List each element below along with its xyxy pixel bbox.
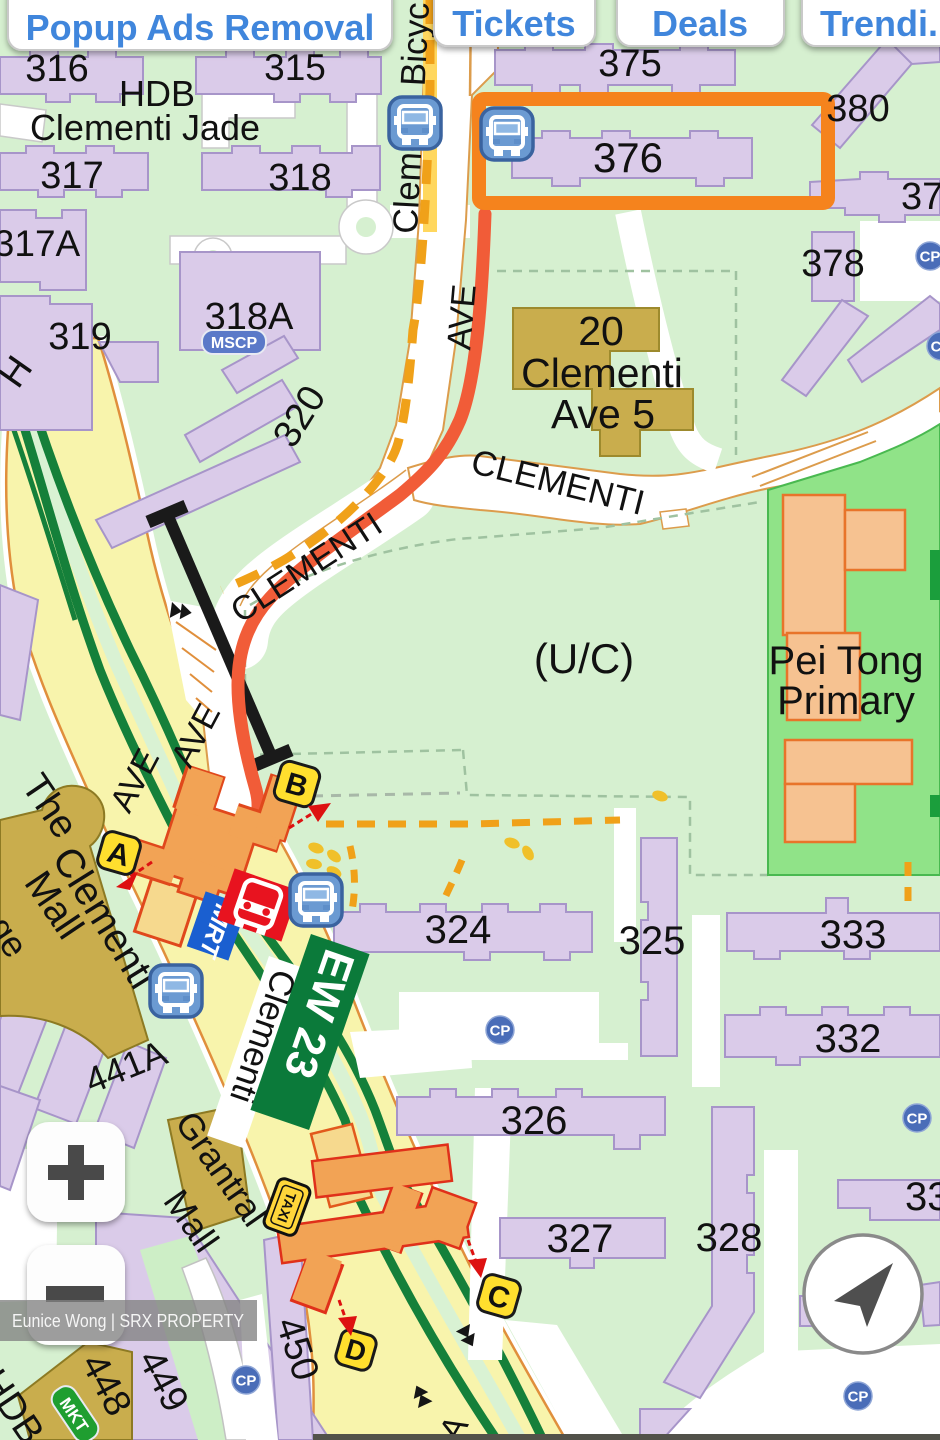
svg-text:Tickets: Tickets [452, 3, 575, 44]
svg-text:Pei Tong: Pei Tong [769, 639, 924, 683]
svg-text:AVE: AVE [440, 283, 484, 352]
svg-text:Primary: Primary [777, 679, 915, 723]
svg-text:318: 318 [268, 157, 331, 199]
svg-text:316: 316 [25, 48, 88, 90]
svg-text:378: 378 [801, 243, 864, 285]
svg-text:326: 326 [501, 1099, 568, 1143]
svg-text:(U/C): (U/C) [534, 635, 634, 682]
svg-text:MSCP: MSCP [211, 335, 258, 352]
svg-text:317: 317 [40, 155, 103, 197]
svg-text:20: 20 [578, 308, 624, 354]
svg-text:325: 325 [619, 919, 686, 963]
svg-text:Popup Ads Removal: Popup Ads Removal [26, 7, 375, 48]
svg-text:376: 376 [593, 134, 663, 181]
svg-text:Ave 5: Ave 5 [551, 391, 655, 437]
svg-text:315: 315 [264, 47, 326, 88]
svg-text:324: 324 [425, 908, 492, 952]
svg-text:327: 327 [547, 1217, 614, 1261]
svg-text:328: 328 [696, 1216, 763, 1260]
svg-text:319: 319 [48, 316, 111, 358]
svg-text:317A: 317A [0, 223, 81, 264]
svg-text:Eunice Wong | SRX PROPERTY: Eunice Wong | SRX PROPERTY [12, 1311, 244, 1331]
svg-text:380: 380 [826, 88, 889, 130]
svg-text:37: 37 [901, 176, 940, 218]
svg-text:Trendi..: Trendi.. [820, 3, 940, 44]
svg-text:33: 33 [905, 1175, 940, 1219]
svg-text:Clementi: Clementi [521, 350, 683, 396]
svg-text:332: 332 [815, 1017, 882, 1061]
svg-text:Clementi Jade: Clementi Jade [30, 107, 260, 148]
svg-text:333: 333 [820, 913, 887, 957]
svg-text:Deals: Deals [652, 3, 748, 44]
svg-text:375: 375 [598, 43, 661, 85]
